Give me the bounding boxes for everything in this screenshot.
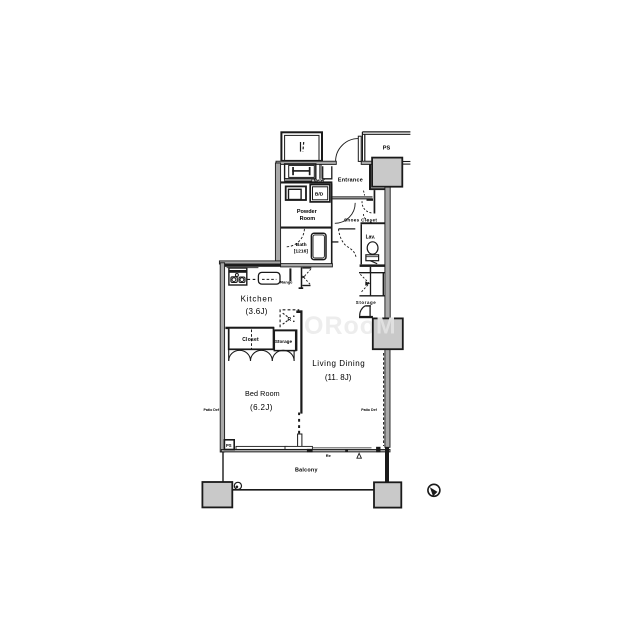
svg-text:Bed Room: Bed Room: [245, 389, 280, 398]
svg-text:Living Dining: Living Dining: [312, 359, 365, 368]
svg-text:Re: Re: [326, 453, 332, 458]
svg-text:Balcony: Balcony: [295, 467, 318, 473]
svg-text:Kitchen: Kitchen: [241, 295, 273, 304]
svg-text:B/D: B/D: [315, 191, 324, 197]
svg-text:(11. 8J): (11. 8J): [325, 373, 352, 382]
svg-text:Shoes Closet: Shoes Closet: [344, 217, 377, 222]
svg-text:Bath: Bath: [296, 242, 307, 248]
svg-text:Entrance: Entrance: [338, 177, 363, 183]
svg-text:M: M: [376, 313, 396, 339]
svg-text:(3.6J): (3.6J): [246, 307, 268, 316]
svg-text:Powder: Powder: [297, 209, 318, 215]
svg-text:R: R: [288, 317, 292, 323]
svg-text:Storage: Storage: [356, 300, 377, 305]
svg-text:Patio Def: Patio Def: [204, 408, 220, 412]
svg-text:Storage: Storage: [275, 339, 293, 344]
svg-text:PS: PS: [226, 443, 232, 448]
svg-text:Closet: Closet: [242, 337, 259, 343]
svg-text:(6.2J): (6.2J): [250, 403, 273, 412]
svg-text:PS: PS: [383, 145, 391, 151]
svg-text:Room: Room: [300, 216, 316, 222]
svg-text:Patio Def: Patio Def: [361, 408, 377, 412]
svg-text:[1216]: [1216]: [294, 249, 309, 255]
svg-text:Lav.: Lav.: [366, 235, 376, 241]
